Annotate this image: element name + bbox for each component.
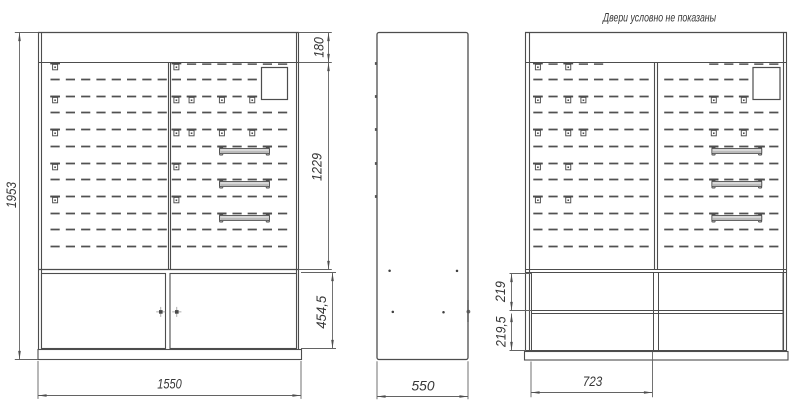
svg-text:550: 550	[412, 378, 435, 394]
svg-text:Двери условно не показаны: Двери условно не показаны	[601, 13, 716, 25]
svg-text:723: 723	[583, 373, 603, 389]
svg-text:219: 219	[492, 281, 508, 303]
svg-text:180: 180	[311, 37, 327, 58]
svg-text:219,5: 219,5	[492, 316, 508, 348]
svg-text:454,5: 454,5	[313, 296, 329, 329]
svg-text:1229: 1229	[309, 153, 325, 181]
svg-text:1550: 1550	[157, 376, 182, 392]
svg-text:1953: 1953	[3, 182, 19, 208]
